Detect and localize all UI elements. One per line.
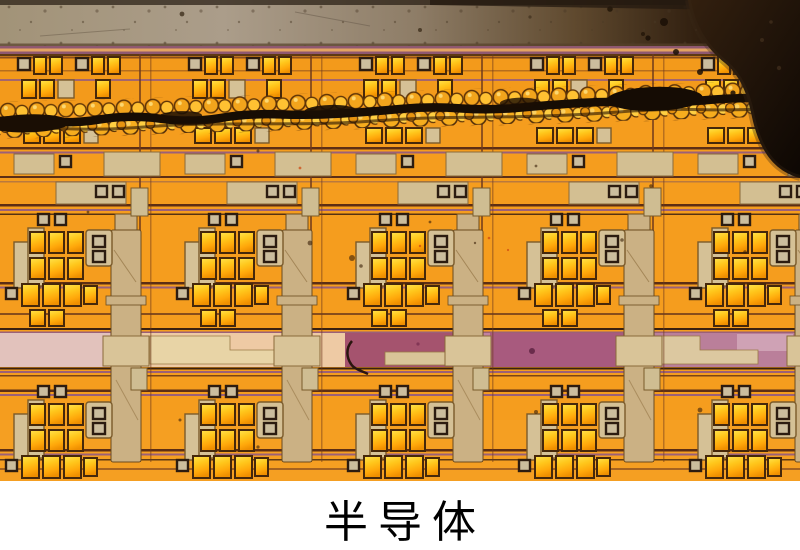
- seal-ring-lines: [0, 46, 800, 56]
- chip-micrograph-photo: [0, 0, 800, 481]
- caption-text: 半导体: [0, 481, 800, 550]
- screenshot-root: 半导体: [0, 0, 800, 550]
